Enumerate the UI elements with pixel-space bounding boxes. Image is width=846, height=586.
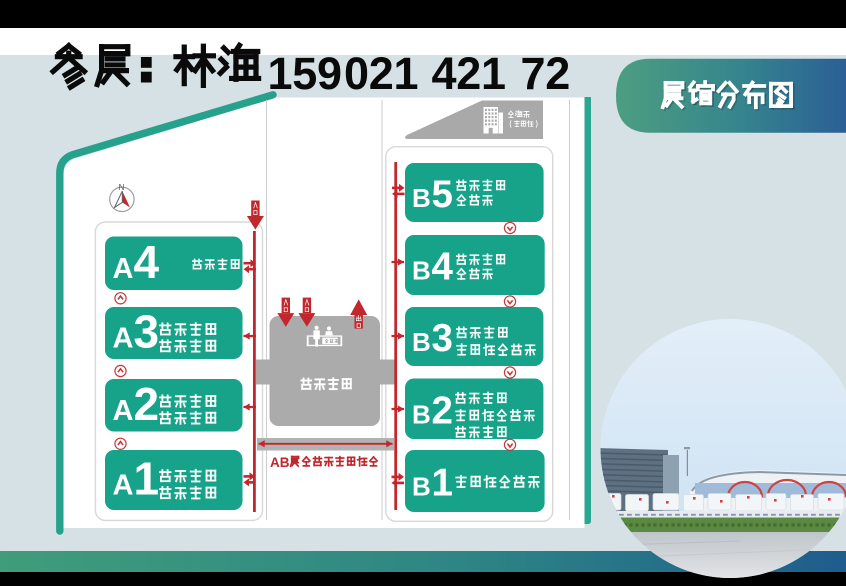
svg-text:B: B [412, 327, 431, 357]
svg-text:A: A [113, 323, 134, 355]
svg-text:021: 021 [344, 48, 418, 99]
svg-text:A: A [113, 470, 134, 502]
svg-text:3: 3 [134, 306, 160, 358]
svg-text:4: 4 [432, 246, 454, 289]
svg-text:421: 421 [432, 48, 506, 99]
svg-text:2: 2 [432, 389, 453, 432]
svg-text:5: 5 [432, 173, 453, 216]
svg-text:B: B [412, 256, 431, 286]
svg-text:4: 4 [134, 236, 160, 288]
svg-text:1: 1 [432, 462, 453, 505]
svg-text:3: 3 [432, 317, 453, 360]
svg-text:A: A [113, 395, 134, 427]
svg-text:1: 1 [134, 453, 160, 505]
svg-text:AB: AB [270, 455, 290, 470]
svg-text:B: B [412, 183, 431, 213]
svg-text:B: B [412, 472, 431, 502]
svg-text:A: A [113, 253, 134, 285]
svg-text:2: 2 [134, 378, 160, 430]
svg-text:N: N [119, 183, 125, 192]
svg-text:B: B [412, 399, 431, 429]
svg-text:159: 159 [268, 48, 342, 99]
svg-text:72: 72 [521, 48, 570, 99]
